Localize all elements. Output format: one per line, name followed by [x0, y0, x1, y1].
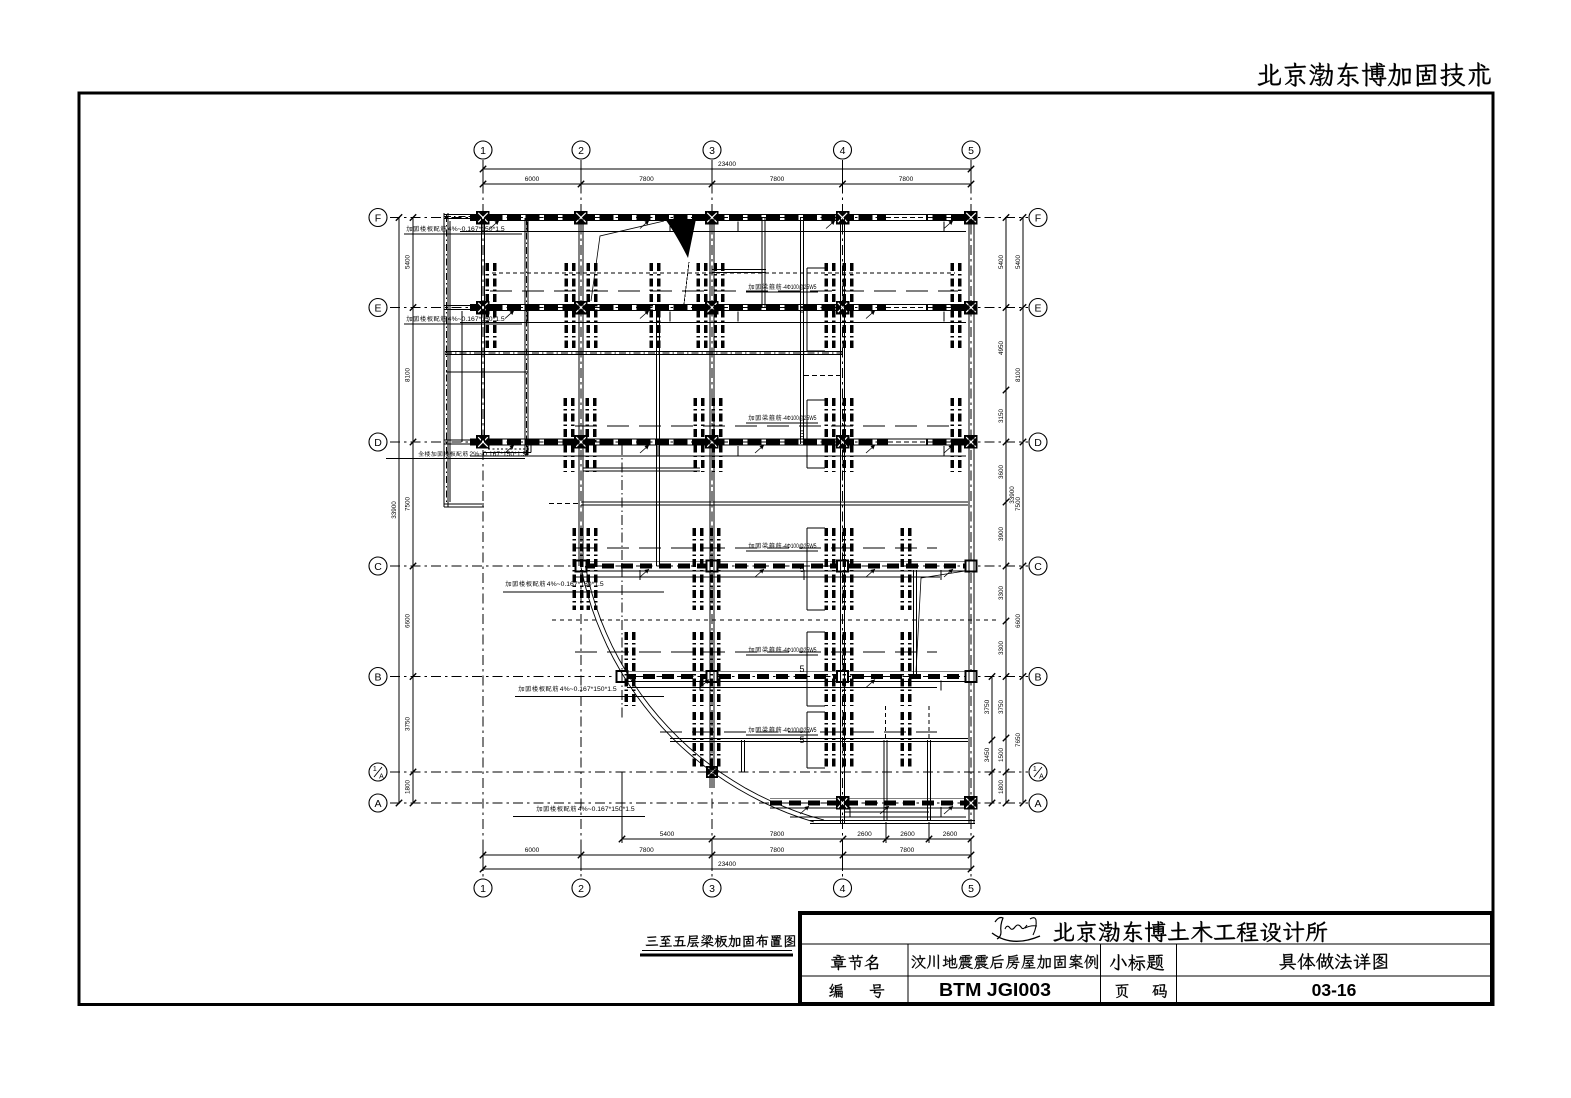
svg-text:3750: 3750	[998, 700, 1005, 715]
svg-text:1800: 1800	[405, 780, 412, 795]
svg-text:3: 3	[709, 145, 715, 157]
svg-text:1800: 1800	[998, 780, 1005, 795]
svg-text:7500: 7500	[1015, 497, 1022, 512]
svg-text:E: E	[1034, 302, 1041, 314]
svg-text:2600: 2600	[900, 831, 915, 838]
svg-text:1: 1	[480, 883, 486, 895]
svg-text:5400: 5400	[660, 831, 675, 838]
svg-text:7800: 7800	[770, 831, 785, 838]
svg-text:-4Φ100@25W5: -4Φ100@25W5	[783, 284, 817, 291]
svg-text:3300: 3300	[998, 586, 1005, 601]
svg-text:4: 4	[840, 145, 846, 157]
svg-text:-4Φ100@25W5: -4Φ100@25W5	[783, 727, 817, 734]
svg-text:4: 4	[840, 883, 846, 895]
svg-text:3: 3	[709, 883, 715, 895]
svg-text:F: F	[375, 212, 381, 224]
svg-text:3750: 3750	[405, 717, 412, 732]
svg-text:4%~0.167*150*1.5: 4%~0.167*150*1.5	[560, 686, 617, 693]
svg-text:7800: 7800	[900, 847, 915, 854]
svg-text:33900: 33900	[1009, 486, 1016, 504]
svg-text:D: D	[374, 437, 382, 449]
svg-text:6000: 6000	[525, 176, 540, 183]
svg-text:4%~0.167*150*1.5: 4%~0.167*150*1.5	[448, 316, 505, 323]
svg-text:5400: 5400	[405, 255, 412, 270]
svg-text:1: 1	[480, 145, 486, 157]
svg-text:A: A	[374, 798, 381, 810]
svg-text:F: F	[1035, 212, 1041, 224]
svg-text:5: 5	[799, 735, 804, 745]
svg-text:23400: 23400	[718, 161, 736, 168]
svg-text:1: 1	[1033, 766, 1037, 773]
svg-text:6600: 6600	[405, 614, 412, 629]
svg-text:6000: 6000	[525, 847, 540, 854]
svg-text:4%~0.167*150*1.5: 4%~0.167*150*1.5	[578, 806, 635, 813]
svg-text:C: C	[374, 561, 382, 573]
svg-text:A: A	[1034, 798, 1041, 810]
svg-text:-4Φ100@25W5: -4Φ100@25W5	[783, 415, 817, 422]
svg-text:5: 5	[968, 883, 974, 895]
svg-text:8100: 8100	[405, 368, 412, 383]
svg-text:3450: 3450	[984, 747, 991, 762]
svg-text:7800: 7800	[639, 847, 654, 854]
svg-text:1: 1	[373, 766, 377, 773]
svg-text:8100: 8100	[1015, 368, 1022, 383]
svg-text:5: 5	[799, 664, 804, 674]
svg-text:C: C	[1034, 561, 1042, 573]
svg-text:3300: 3300	[998, 641, 1005, 656]
svg-text:33900: 33900	[391, 501, 398, 519]
svg-text:-4Φ100@25W5: -4Φ100@25W5	[783, 647, 817, 654]
svg-text:2600: 2600	[857, 831, 872, 838]
svg-text:A: A	[1039, 774, 1044, 781]
svg-text:7800: 7800	[899, 176, 914, 183]
svg-text:BTM JGI003: BTM JGI003	[939, 980, 1051, 1000]
svg-text:3750: 3750	[984, 699, 991, 714]
svg-text:3150: 3150	[998, 409, 1005, 424]
svg-text:7500: 7500	[405, 497, 412, 512]
svg-text:3600: 3600	[998, 465, 1005, 480]
svg-text:5: 5	[799, 305, 804, 315]
svg-text:1500: 1500	[998, 748, 1005, 763]
svg-text:4%~0.167*150*1.5: 4%~0.167*150*1.5	[448, 226, 505, 233]
svg-text:2%~0.167*150*1.5: 2%~0.167*150*1.5	[469, 451, 526, 458]
svg-text:5400: 5400	[998, 255, 1005, 270]
svg-text:7800: 7800	[770, 847, 785, 854]
svg-text:2: 2	[578, 883, 584, 895]
svg-text:3900: 3900	[998, 527, 1005, 542]
svg-text:23400: 23400	[718, 861, 736, 868]
svg-text:B: B	[374, 671, 381, 683]
svg-text:7800: 7800	[639, 176, 654, 183]
svg-text:7650: 7650	[1015, 733, 1022, 748]
svg-text:6600: 6600	[1015, 614, 1022, 629]
svg-text:B: B	[1034, 671, 1041, 683]
svg-text:2: 2	[578, 145, 584, 157]
svg-text:2600: 2600	[943, 831, 958, 838]
svg-text:4%~0.167*150*1.5: 4%~0.167*150*1.5	[547, 581, 604, 588]
svg-text:4950: 4950	[998, 341, 1005, 356]
svg-text:7800: 7800	[770, 176, 785, 183]
svg-text:03-16: 03-16	[1312, 980, 1357, 1000]
svg-text:A: A	[379, 774, 384, 781]
svg-text:5: 5	[968, 145, 974, 157]
svg-text:E: E	[374, 302, 381, 314]
svg-text:5: 5	[799, 429, 804, 439]
svg-text:5400: 5400	[1015, 255, 1022, 270]
svg-text:D: D	[1034, 437, 1042, 449]
svg-text:-4Φ100@25W5: -4Φ100@25W5	[783, 543, 817, 550]
